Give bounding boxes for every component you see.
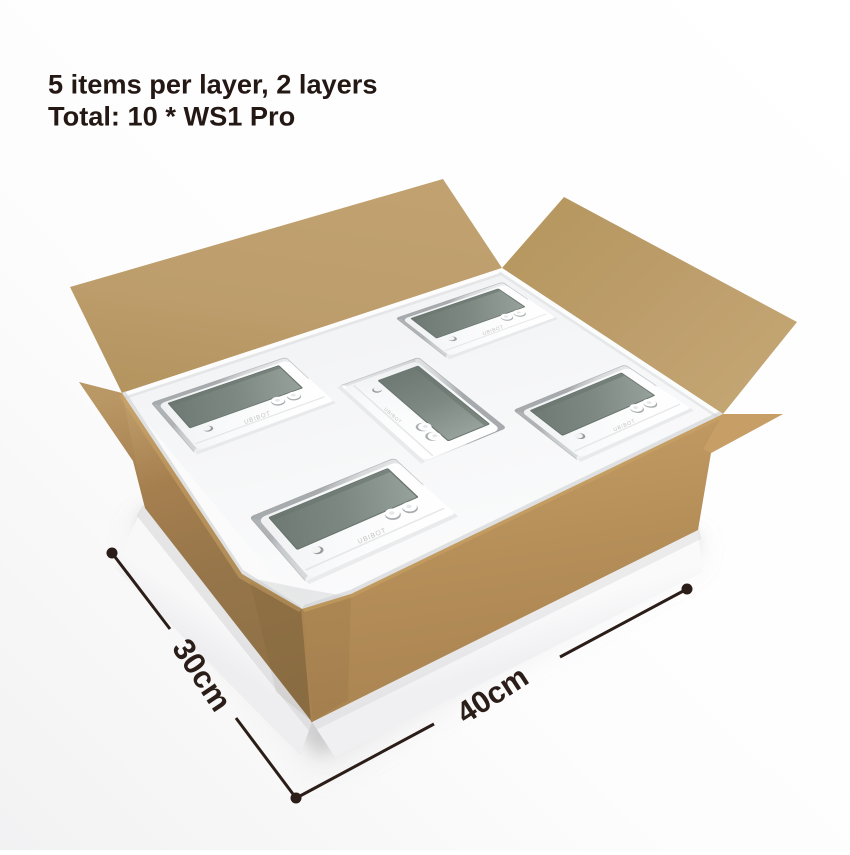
svg-text:Total: 10 * WS1 Pro: Total: 10 * WS1 Pro <box>48 101 295 132</box>
svg-text:5 items per layer, 2 layers: 5 items per layer, 2 layers <box>48 69 378 100</box>
